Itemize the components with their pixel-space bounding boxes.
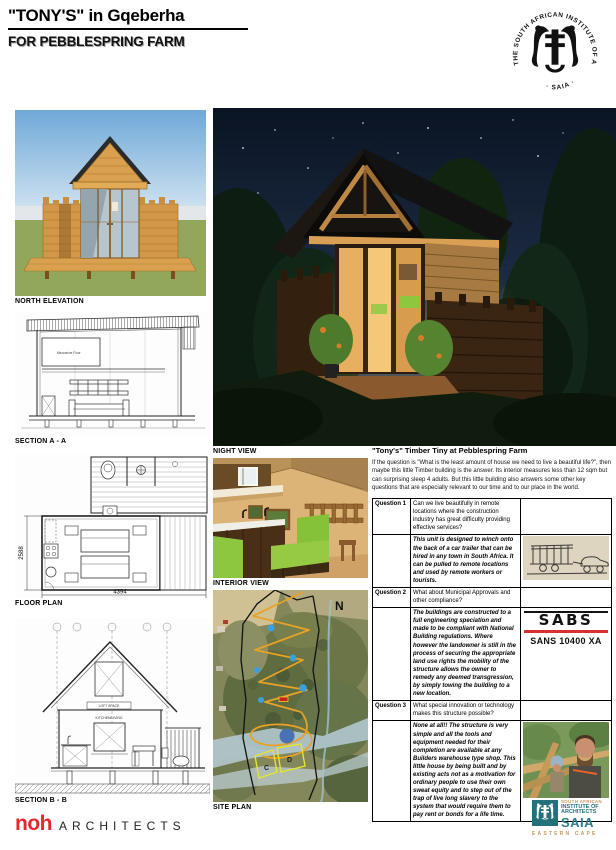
- floor-plan-drawing: 2588 4394: [15, 454, 213, 598]
- floor-plan-panel: 2588 4394 FLOOR PLAN: [15, 454, 213, 607]
- night-view-render: [213, 108, 616, 446]
- interior-view-label: INTERIOR VIEW: [213, 580, 368, 587]
- saia-stamp-icon: THE SOUTH AFRICAN INSTITUTE OF ARCHITECT…: [506, 2, 604, 100]
- section-a-label: SECTION A - A: [15, 438, 210, 445]
- question-1-label: Question 1: [373, 498, 411, 534]
- right-wing-wall: [139, 197, 178, 258]
- loft-note: LOFT SPACE: [99, 704, 121, 708]
- site-plan-panel: C D N SITE PLAN: [213, 590, 368, 811]
- article-title: "Tony's" Timber Tiny at Pebblespring Far…: [372, 446, 612, 455]
- mezzanine-note: Mezzanine Floor: [57, 351, 82, 355]
- builder-photo: [523, 722, 609, 798]
- question-1-text: Can we live beautifully in remote locati…: [411, 498, 521, 534]
- site-plan-label: SITE PLAN: [213, 804, 368, 811]
- north-elevation-panel: NORTH ELEVATION: [15, 110, 206, 305]
- saia-ec-emblem: [532, 800, 558, 826]
- saia-ec-lion-icon: [532, 800, 558, 826]
- night-view-panel: NIGHT VIEW: [213, 108, 616, 455]
- question-2-spacer: [521, 587, 612, 607]
- noh-architects-text: ARCHITECTS: [59, 819, 186, 833]
- section-b-label: SECTION B - B: [15, 797, 210, 804]
- table-row: This unit is designed to winch onto the …: [373, 534, 612, 587]
- interior-view-panel: INTERIOR VIEW: [213, 458, 368, 587]
- answer-1-text: This unit is designed to winch onto the …: [411, 534, 521, 587]
- interior-view-render: [213, 458, 368, 578]
- page-subtitle: FOR PEBBLESPRING FARM: [8, 34, 185, 49]
- north-elevation-render: [15, 110, 206, 296]
- zone-c-label: C: [264, 765, 269, 772]
- saia-ec-region: EASTERN CAPE: [532, 831, 614, 837]
- sabs-standard: SANS 10400 XA: [524, 635, 608, 647]
- site-plan-map: C D N: [213, 590, 368, 802]
- table-row: Question 2 What about Municipal Approval…: [373, 587, 612, 607]
- zone-d-label: D: [287, 757, 292, 764]
- answer-3-spacer: [373, 720, 411, 821]
- section-b-panel: LOFT SPACE KITCHEN/LIVING: [15, 618, 210, 804]
- question-3-spacer: [521, 700, 612, 720]
- table-row: Question 3 What special innovation or te…: [373, 700, 612, 720]
- sabs-mark: SABS SANS 10400 XA: [523, 609, 609, 649]
- answer-1-figure: [521, 534, 612, 587]
- section-a-drawing: Mezzanine Floor: [15, 312, 210, 436]
- north-elevation-label: NORTH ELEVATION: [15, 298, 206, 305]
- answer-2-spacer: [373, 607, 411, 700]
- dim-width: 4394: [113, 590, 127, 596]
- kitchen-note: KITCHEN/LIVING: [96, 716, 123, 720]
- page-title-main: "TONY'S": [8, 6, 84, 25]
- side-deck: [160, 516, 206, 590]
- question-2-text: What about Municipal Approvals and other…: [411, 587, 521, 607]
- section-b-drawing: LOFT SPACE KITCHEN/LIVING: [15, 618, 210, 795]
- left-wing-wall: [43, 197, 82, 258]
- section-a-panel: Mezzanine Floor: [15, 312, 210, 445]
- question-2-label: Question 2: [373, 587, 411, 607]
- poster-page: "TONY'S" in Gqeberha FOR PEBBLESPRING FA…: [0, 0, 616, 850]
- article-intro: If the question is "What is the least am…: [372, 459, 612, 493]
- saia-ec-acronym: SAIA: [561, 816, 602, 830]
- qa-table: Question 1 Can we live beautifully in re…: [372, 498, 612, 822]
- article-panel: "Tony's" Timber Tiny at Pebblespring Far…: [372, 446, 612, 822]
- page-title-rest: in Gqeberha: [84, 6, 184, 25]
- table-row: The buildings are constructed to a full …: [373, 607, 612, 700]
- question-3-text: What special innovation or technology ma…: [411, 700, 521, 720]
- wc-deck: [91, 457, 207, 516]
- north-marker: N: [335, 599, 344, 613]
- answer-2-figure: SABS SANS 10400 XA: [521, 607, 612, 700]
- noh-architects-logo: noh ARCHITECTS: [15, 812, 186, 836]
- table-row: Question 1 Can we live beautifully in re…: [373, 498, 612, 534]
- sabs-brand: SABS: [524, 611, 608, 629]
- noh-wordmark: noh: [15, 812, 52, 836]
- main-room: [42, 516, 160, 591]
- answer-1-spacer: [373, 534, 411, 587]
- trailer-sketch-icon: [523, 536, 609, 580]
- floor-plan-label: FLOOR PLAN: [15, 600, 213, 607]
- answer-3-text: None at all!! The structure is very simp…: [411, 720, 521, 821]
- sabs-red-bar: [524, 630, 608, 633]
- saia-eastern-cape-logo: SOUTH AFRICAN INSTITUTE OF ARCHITECTS SA…: [532, 800, 614, 837]
- glass-doors: [81, 189, 139, 258]
- answer-2-text: The buildings are constructed to a full …: [411, 607, 521, 700]
- question-1-spacer: [521, 498, 612, 534]
- dim-height: 2588: [19, 546, 25, 560]
- question-3-label: Question 3: [373, 700, 411, 720]
- page-title: "TONY'S" in Gqeberha: [8, 6, 248, 30]
